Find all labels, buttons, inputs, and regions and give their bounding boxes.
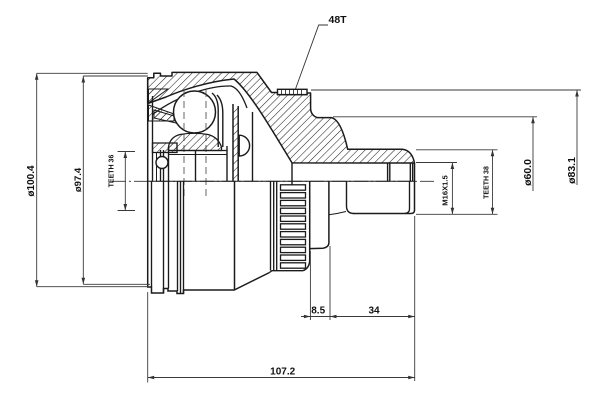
svg-text:8.5: 8.5 (311, 306, 325, 317)
svg-text:34: 34 (368, 306, 380, 317)
svg-text:M16X1.5: M16X1.5 (441, 175, 450, 206)
svg-text:ø60.0: ø60.0 (522, 159, 534, 186)
svg-text:48T: 48T (329, 14, 348, 26)
svg-text:ø100.4: ø100.4 (26, 165, 37, 197)
svg-text:TEETH 38: TEETH 38 (484, 166, 491, 199)
svg-text:ø83.1: ø83.1 (566, 157, 578, 184)
svg-text:107.2: 107.2 (270, 367, 295, 378)
svg-text:TEETH 36: TEETH 36 (109, 155, 116, 188)
svg-text:ø97.4: ø97.4 (73, 167, 84, 192)
